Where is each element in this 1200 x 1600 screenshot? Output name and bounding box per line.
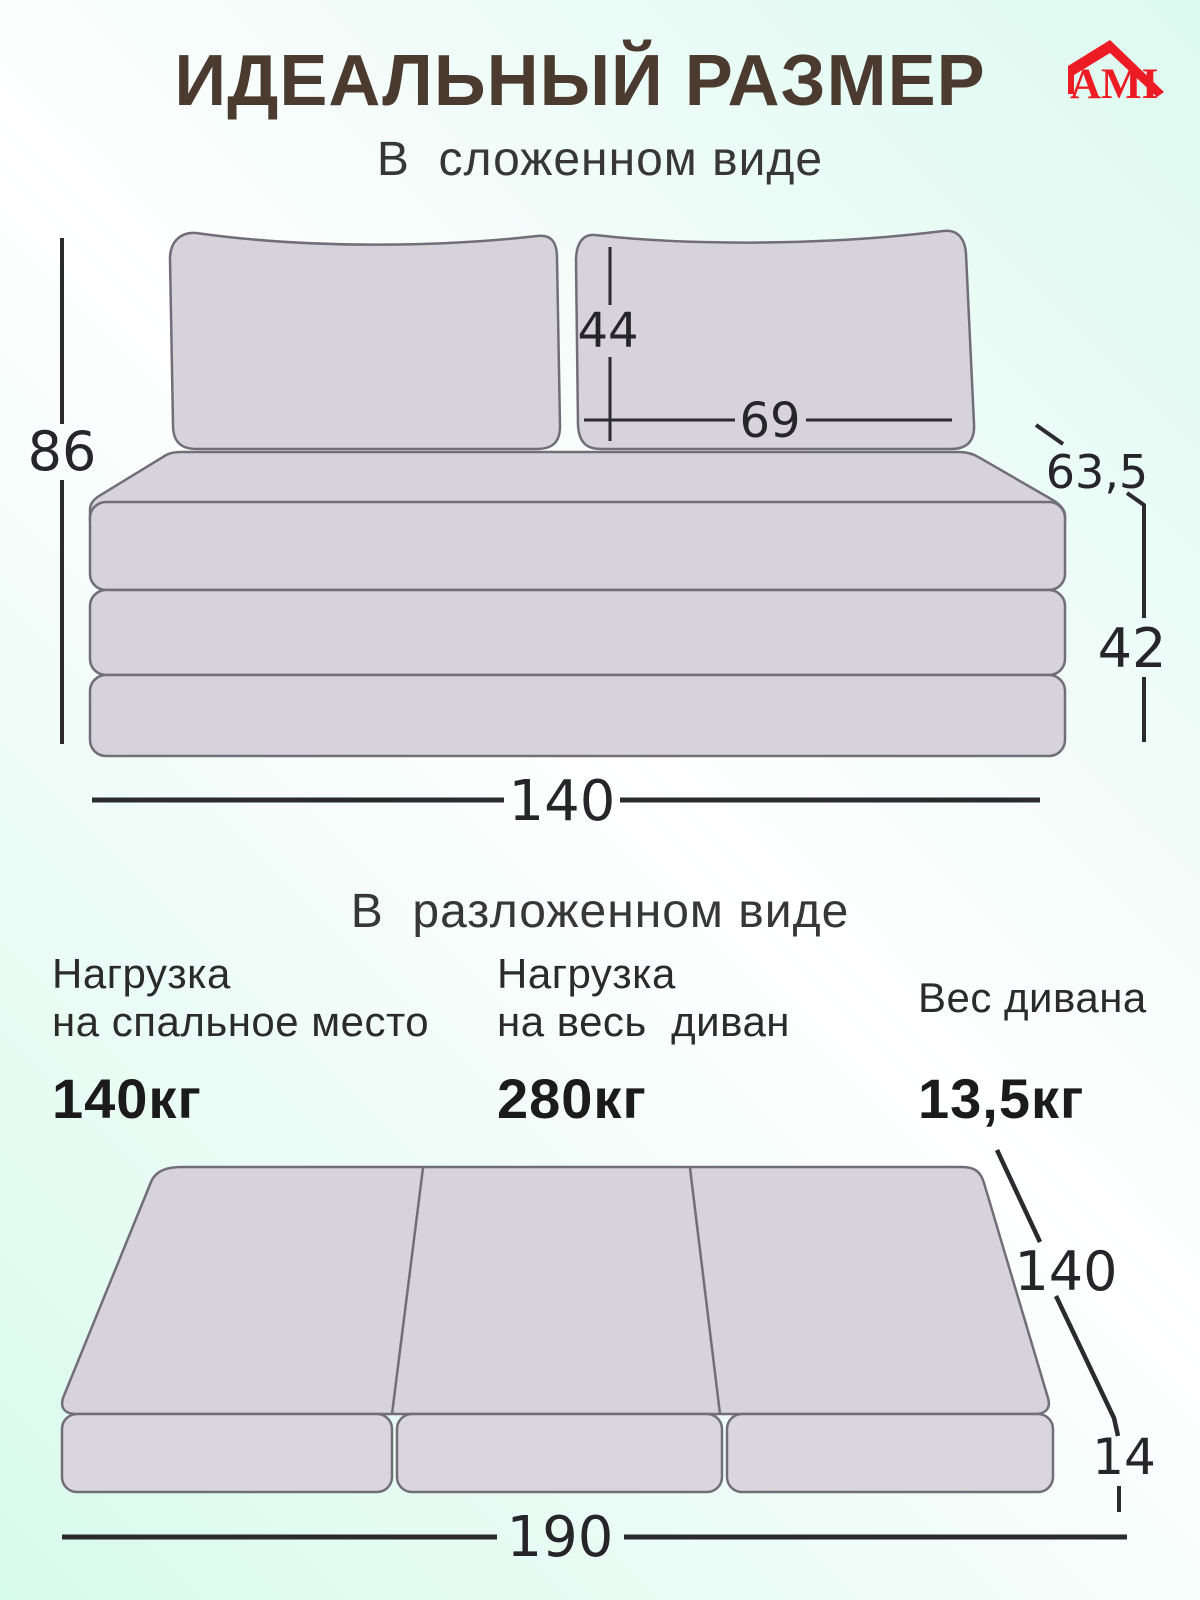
mattress-top-surface <box>62 1167 1049 1414</box>
spec-label-wrap: Нагрузка на спальное место <box>52 950 429 1050</box>
spec-label-line1: Вес дивана <box>918 950 1147 1022</box>
spec-label-wrap: Нагрузка на весь диван <box>497 950 790 1050</box>
infographic-page: ИДЕАЛЬНЫЙ РАЗМЕР AMI В сложенном виде В … <box>0 0 1200 1600</box>
sofa-stack-layer-3 <box>90 675 1065 756</box>
spec-label-line2: на спальное место <box>52 998 429 1046</box>
spec-label-line1: Нагрузка <box>52 950 429 998</box>
spec-value: 280кг <box>497 1066 790 1131</box>
dim-folded-width-value: 140 <box>509 769 616 834</box>
dim-bed-depth-line-top <box>997 1150 1040 1242</box>
spec-label-line1: Нагрузка <box>497 950 790 998</box>
spec-value: 140кг <box>52 1066 429 1131</box>
spec-label-line2 <box>918 1022 1147 1046</box>
spec-label-wrap: Вес дивана <box>918 950 1147 1050</box>
dim-depth-tick <box>1036 425 1063 444</box>
spec-load-total: Нагрузка на весь диван 280кг <box>497 950 790 1131</box>
dim-depth-value: 63,5 <box>1046 445 1148 499</box>
dim-bed-depth-line-bottom <box>1056 1296 1118 1436</box>
sofa-stack-layer-2 <box>90 590 1065 675</box>
mattress-front-panel-3 <box>727 1414 1053 1492</box>
dim-pillow-height-value: 44 <box>577 303 638 359</box>
spec-sofa-weight: Вес дивана 13,5кг <box>918 950 1147 1131</box>
spec-load-per-seat: Нагрузка на спальное место 140кг <box>52 950 429 1131</box>
unfolded-bed-diagram: 140 14 190 <box>62 1150 1156 1570</box>
spec-label-line2: на весь диван <box>497 998 790 1046</box>
folded-sofa-diagram: 86 44 69 63,5 42 140 <box>28 231 1167 834</box>
sofa-back-pillow-left <box>170 233 560 449</box>
dim-base-height-value: 42 <box>1098 617 1167 680</box>
sofa-stack-layer-1 <box>90 502 1065 590</box>
dim-pillow-width-value: 69 <box>739 393 800 449</box>
dim-base-height-line-top <box>1127 493 1144 618</box>
dim-folded-height-value: 86 <box>28 420 97 483</box>
mattress-front-panel-1 <box>62 1414 392 1492</box>
mattress-front-panel-2 <box>397 1414 722 1492</box>
dim-bed-depth-value: 140 <box>1014 1240 1117 1303</box>
dim-bed-length-value: 190 <box>507 1505 614 1570</box>
spec-value: 13,5кг <box>918 1066 1147 1131</box>
diagram-canvas: 86 44 69 63,5 42 140 <box>0 0 1200 1600</box>
dim-bed-thickness-value: 14 <box>1092 1428 1156 1486</box>
